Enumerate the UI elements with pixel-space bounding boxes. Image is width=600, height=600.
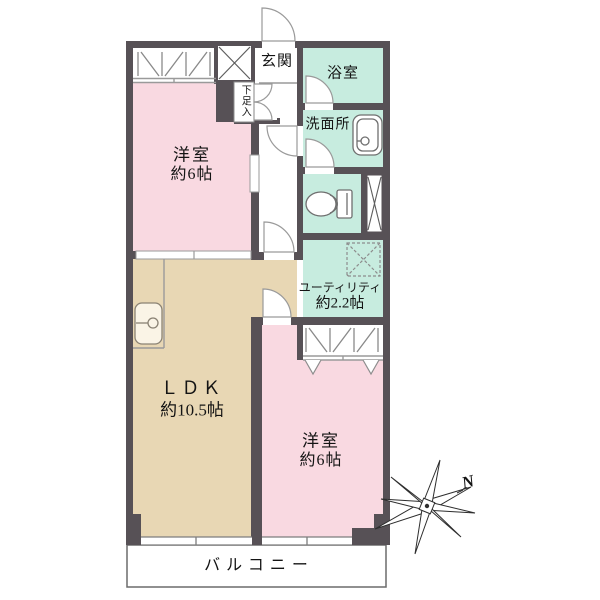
- washroom-label: 洗面所: [306, 116, 351, 134]
- ldk-area: 約10.5帖: [160, 399, 224, 420]
- balcony-label: バルコニー: [204, 556, 314, 576]
- ldk-label: ＬＤＫ: [161, 377, 224, 400]
- meter-box-icon: [216, 44, 253, 82]
- floor-plan: 洋室 約6帖 玄関 浴室 洗面所 下足入 ユーティリティ 約2.2帖 ＬＤＫ 約…: [0, 0, 600, 600]
- bedroom-top-area: 約6帖: [170, 165, 213, 185]
- entrance-door-arc: [262, 8, 295, 41]
- bath-label: 浴室: [327, 65, 359, 84]
- washroom-door-arc: [267, 126, 297, 156]
- floor-plan-drawing: [0, 0, 600, 600]
- closet-bottom-floor: [303, 325, 383, 360]
- shoe-cabinet-label: 下足入: [238, 85, 251, 118]
- ldk-door-arc: [264, 222, 294, 252]
- entrance-label: 玄関: [261, 53, 293, 72]
- closet-top-floor: [133, 48, 216, 83]
- utility-label: ユーティリティ: [299, 281, 382, 296]
- bedroom-top-label: 洋室: [173, 144, 211, 165]
- bedroom-bottom-label: 洋室: [302, 430, 340, 451]
- utility-area: 約2.2帖: [316, 295, 365, 314]
- washbasin-icon: [353, 115, 382, 155]
- toilet-icon: [306, 190, 352, 218]
- kitchen-sink-icon: [135, 303, 162, 344]
- balcony-windows: [141, 537, 352, 545]
- bedroom-bottom-area: 約6帖: [299, 451, 342, 471]
- pipe-shaft-icon: [366, 174, 383, 233]
- room-ldk-main: [133, 317, 251, 537]
